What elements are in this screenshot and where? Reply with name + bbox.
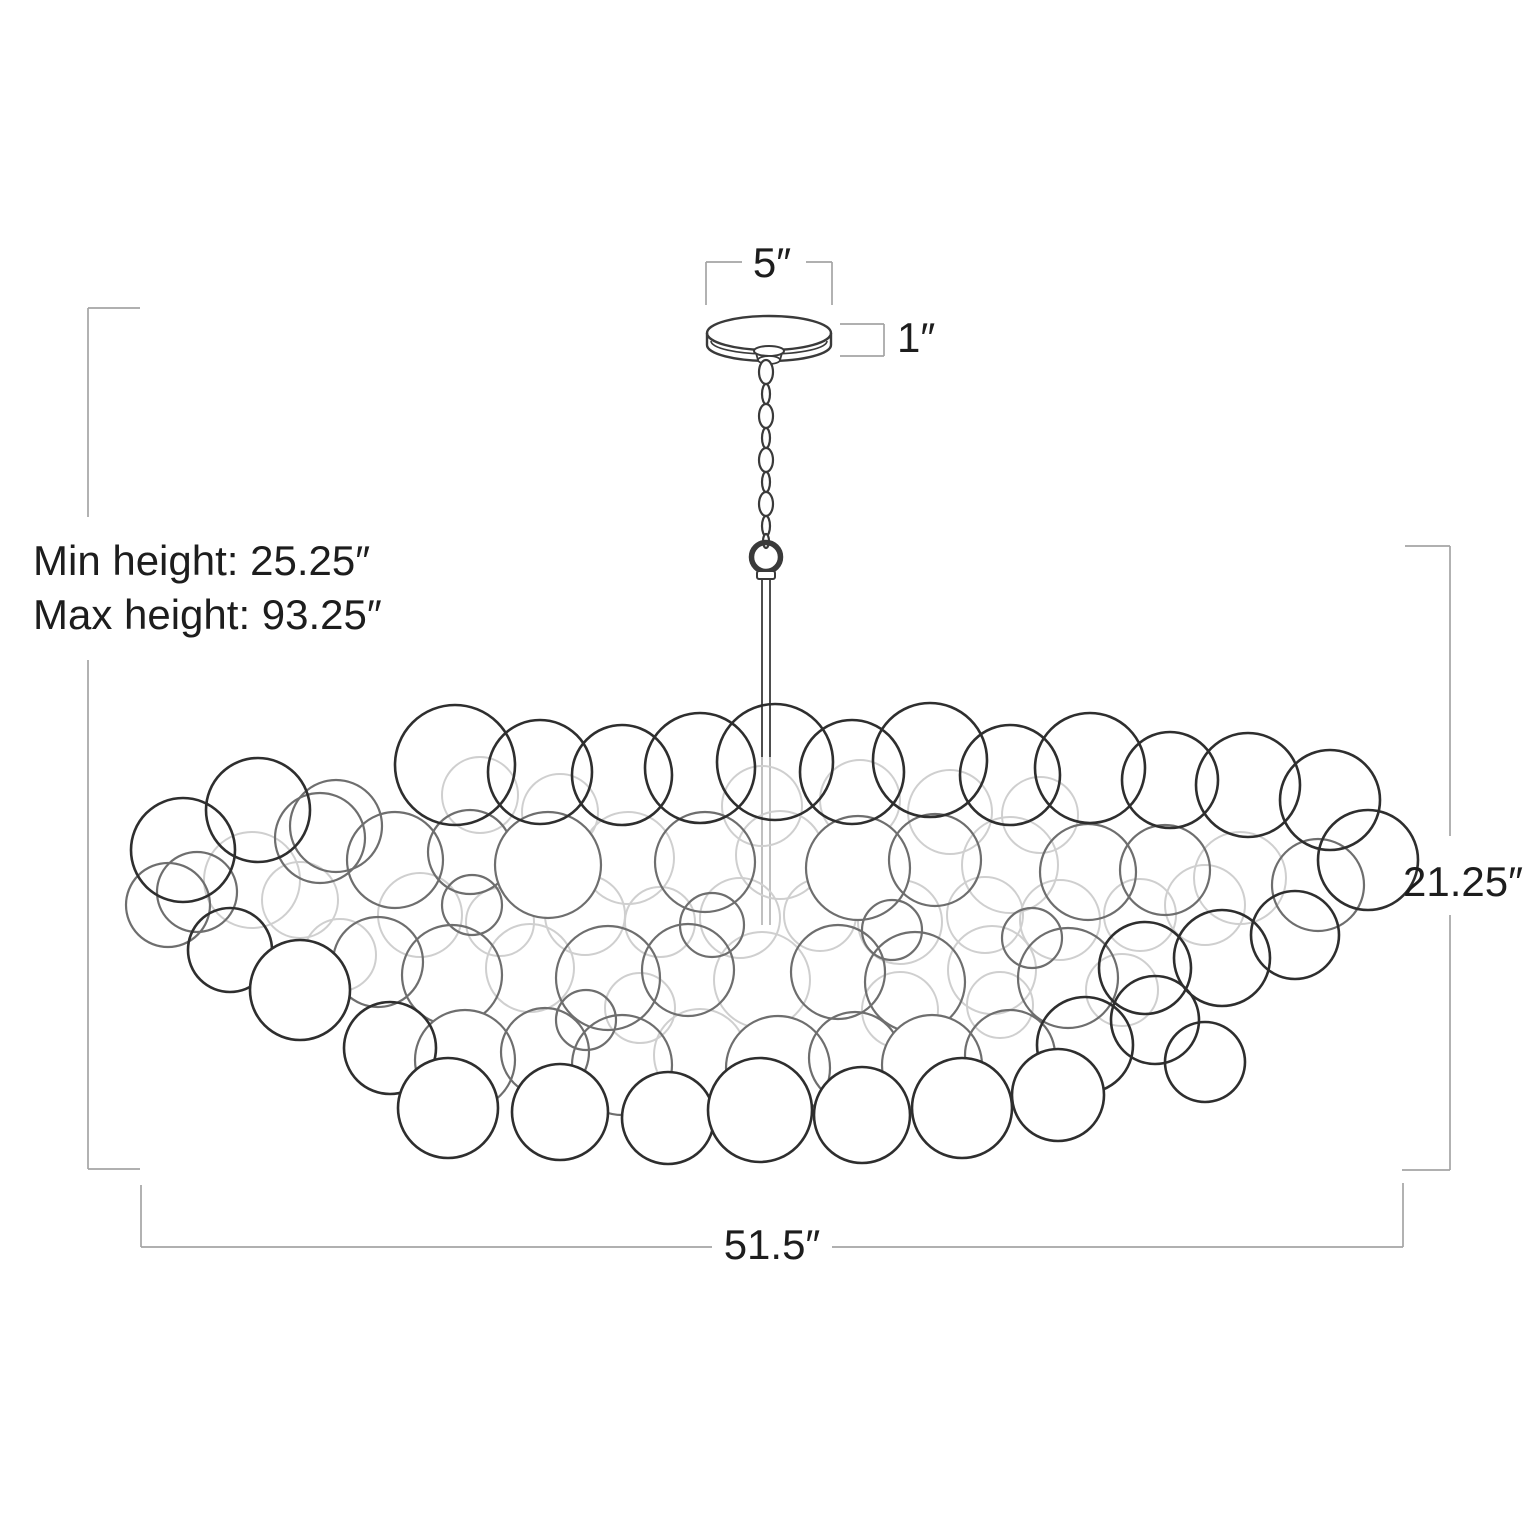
canopy-top	[707, 316, 831, 350]
bubble	[814, 1067, 910, 1163]
bubble	[290, 780, 382, 872]
bubble	[488, 720, 592, 824]
bubble	[512, 1064, 608, 1160]
bubble	[967, 972, 1033, 1038]
chain-link	[759, 492, 773, 516]
bubble	[708, 1058, 812, 1162]
rod-collar	[757, 571, 775, 579]
bubble	[605, 973, 675, 1043]
bubble	[131, 798, 235, 902]
chain-link	[762, 428, 770, 448]
bubble	[700, 878, 780, 958]
bubble	[1012, 1049, 1104, 1141]
bubble	[495, 812, 601, 918]
bubble	[960, 725, 1060, 825]
bubble	[962, 817, 1058, 913]
bubble	[622, 1072, 714, 1164]
label-canopy-height: 1″	[897, 314, 935, 361]
bubble	[206, 758, 310, 862]
chain-link	[762, 472, 770, 492]
bubble	[1165, 865, 1245, 945]
bubble	[642, 924, 734, 1016]
chain-link	[759, 360, 773, 384]
label-fixture-height: 21.25″	[1403, 858, 1523, 905]
bubble	[717, 704, 833, 820]
chandelier-fixture	[707, 316, 831, 925]
bubble	[1165, 1022, 1245, 1102]
spec-sheet: 5″1″Min height: 25.25″Max height: 93.25″…	[0, 0, 1536, 1536]
bubble	[398, 1058, 498, 1158]
bubble	[250, 940, 350, 1040]
bubble	[1002, 908, 1062, 968]
chain-link	[759, 404, 773, 428]
bubble	[1099, 922, 1191, 1014]
bubble	[556, 926, 660, 1030]
bubble	[912, 1058, 1012, 1158]
bubble	[625, 887, 695, 957]
chain-link	[759, 448, 773, 472]
label-max-height: Max height: 93.25″	[33, 591, 382, 638]
bubble	[572, 725, 672, 825]
bubble	[1018, 928, 1118, 1028]
canopy-hub	[754, 346, 784, 356]
label-min-height: Min height: 25.25″	[33, 537, 370, 584]
chain-link	[762, 384, 770, 404]
bubble	[806, 816, 910, 920]
bubble	[1280, 750, 1380, 850]
bubble	[873, 703, 987, 817]
bubble	[442, 875, 502, 935]
bubble	[862, 900, 922, 960]
bubble	[1040, 824, 1136, 920]
label-fixture-width: 51.5″	[724, 1221, 821, 1268]
dimension-diagram: 5″1″Min height: 25.25″Max height: 93.25″…	[0, 0, 1536, 1536]
bubble	[1111, 976, 1199, 1064]
bubble-cluster	[126, 703, 1418, 1164]
label-canopy-width: 5″	[753, 239, 791, 286]
bubble	[395, 705, 515, 825]
